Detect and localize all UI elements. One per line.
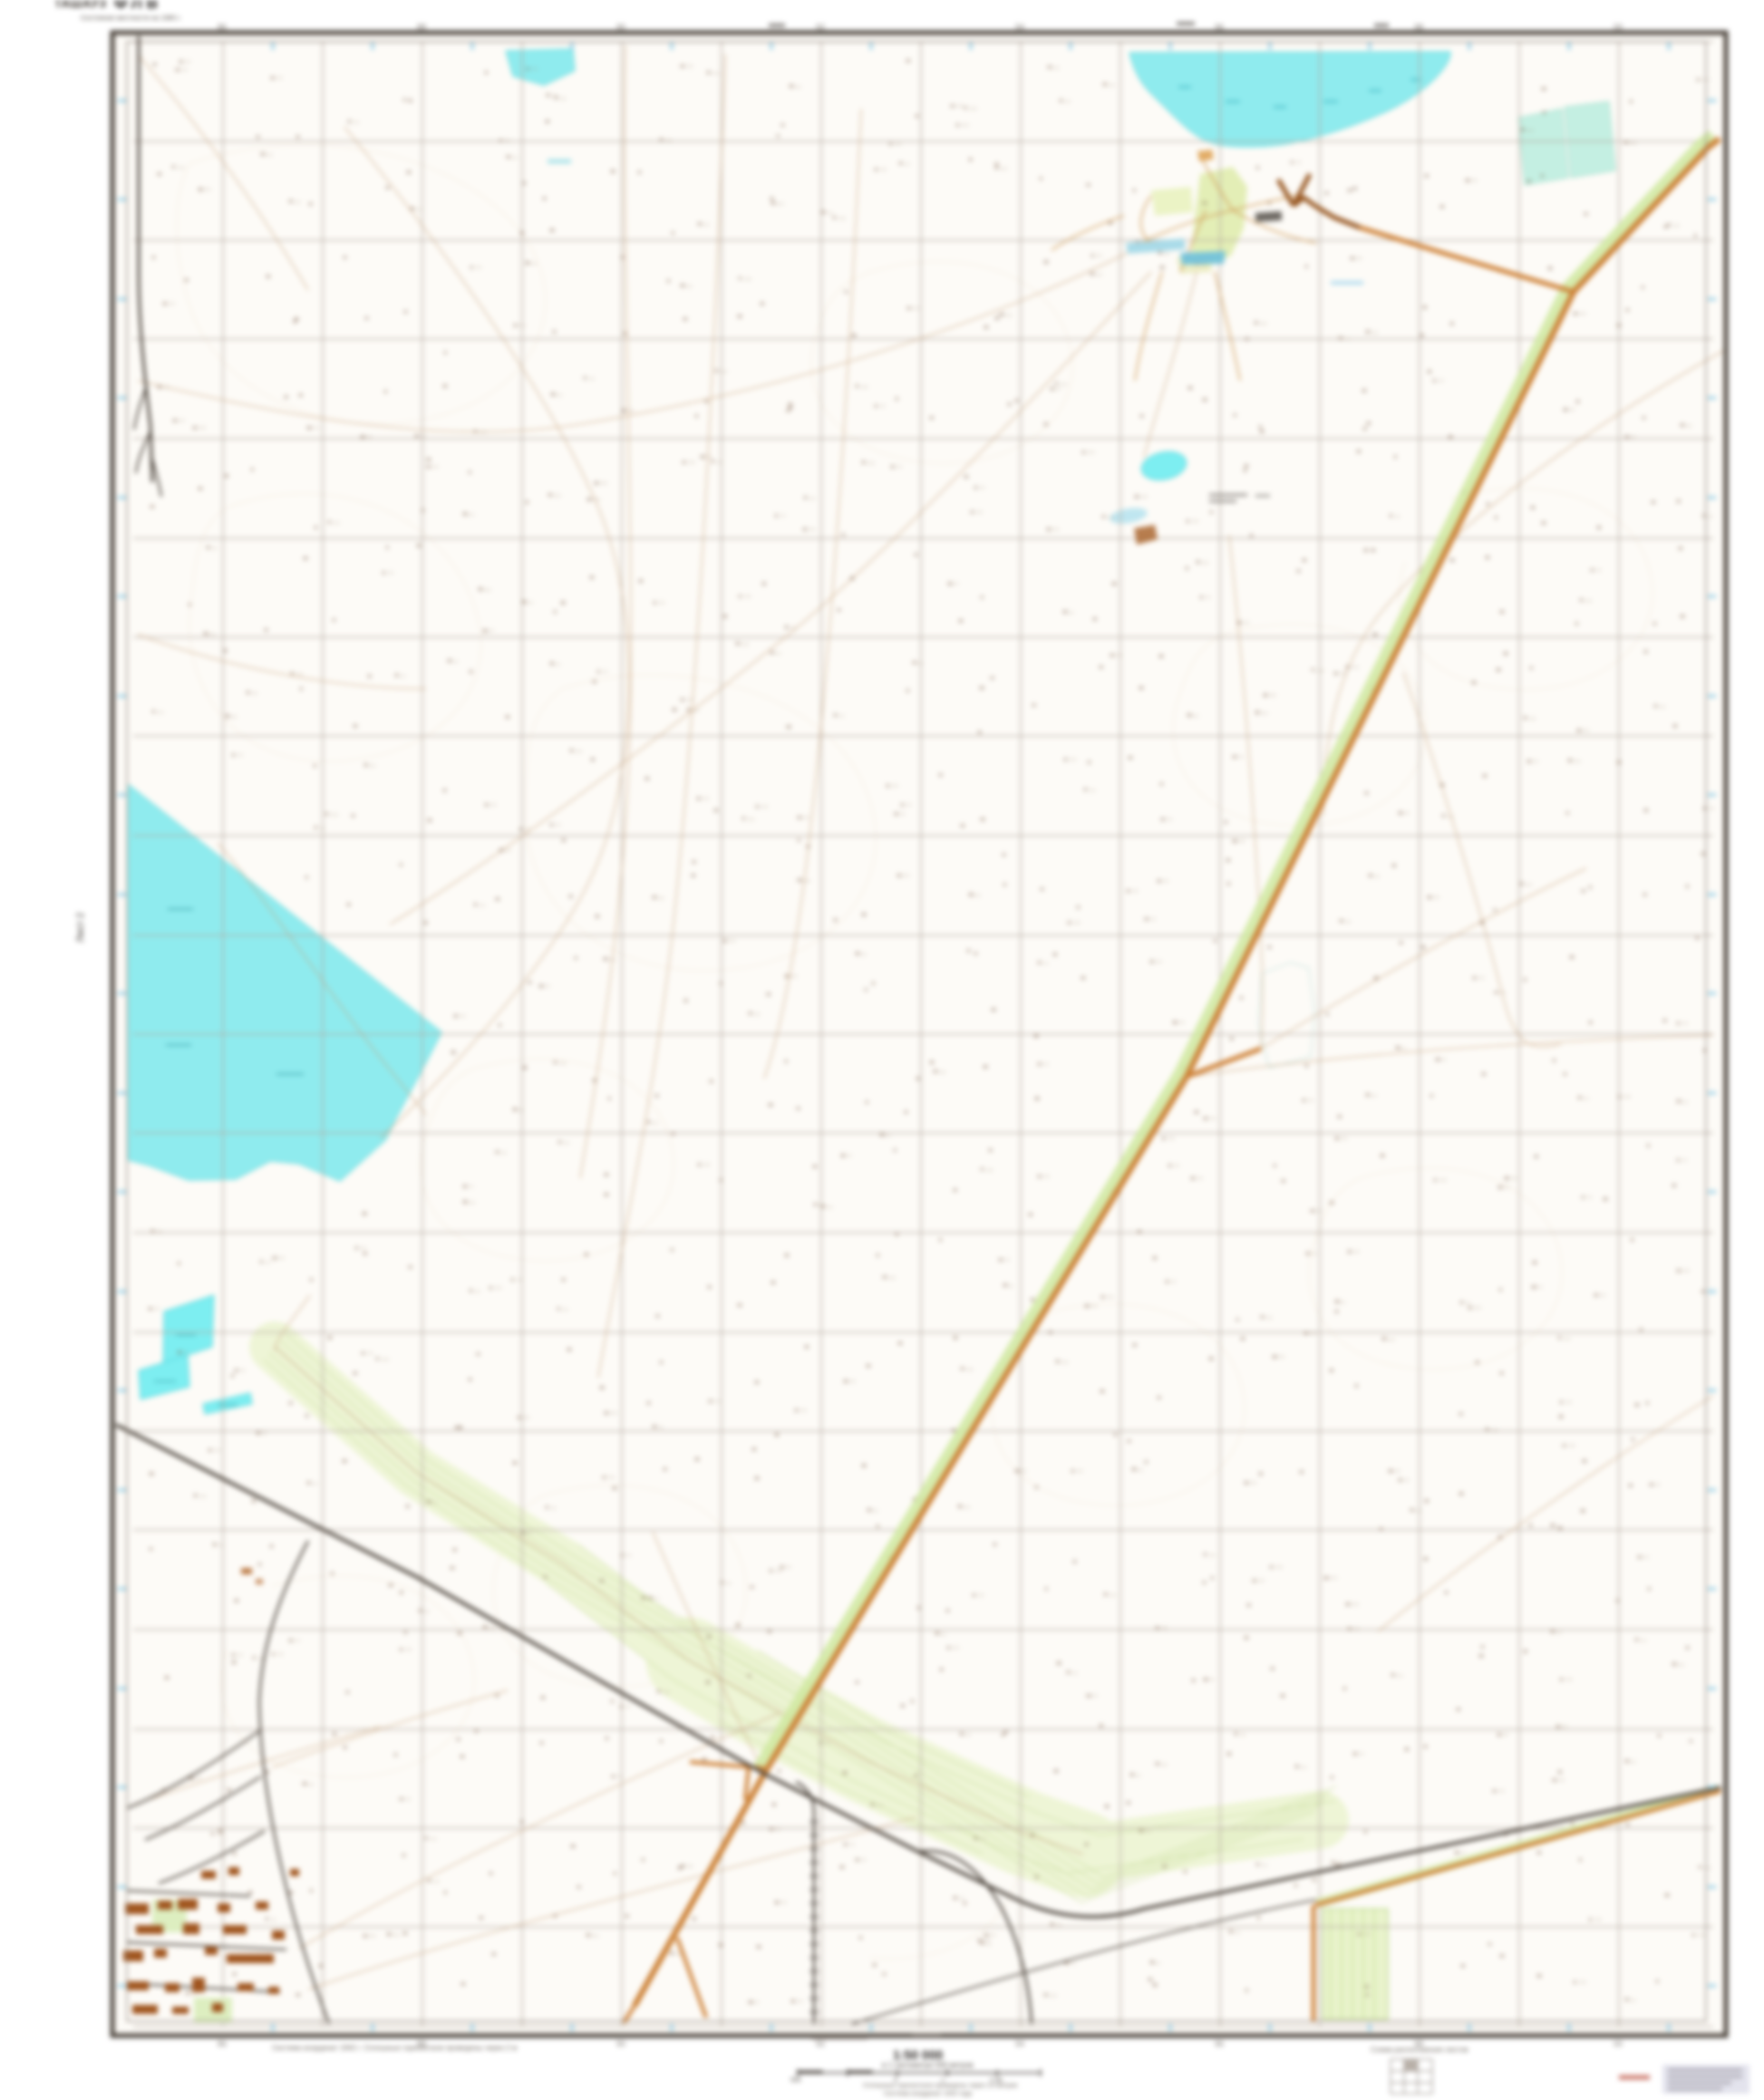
svg-text:Система координат 1942 года: Система координат 1942 года xyxy=(884,2091,972,2097)
svg-text:00: 00 xyxy=(1614,23,1623,32)
svg-text:Схема расположения листов: Схема расположения листов xyxy=(1371,2046,1468,2054)
svg-text:в 1 сантиметре 500 метров: в 1 сантиметре 500 метров xyxy=(882,2061,974,2069)
svg-text:90: 90 xyxy=(616,2039,625,2048)
svg-text:96: 96 xyxy=(1215,2039,1224,2048)
svg-text:1:50 000: 1:50 000 xyxy=(893,2047,943,2062)
svg-text:96: 96 xyxy=(1215,23,1224,32)
svg-text:ФЛВ: ФЛВ xyxy=(114,0,162,12)
svg-text:92: 92 xyxy=(816,2039,825,2048)
svg-text:94: 94 xyxy=(1015,2039,1024,2048)
svg-text:94: 94 xyxy=(1015,23,1024,32)
svg-text:90: 90 xyxy=(616,23,625,32)
svg-text:ТАШАУЗ: ТАШАУЗ xyxy=(54,0,107,10)
svg-text:Состояние местности на 1985 г.: Состояние местности на 1985 г. xyxy=(81,14,181,22)
svg-text:88: 88 xyxy=(417,23,426,32)
svg-text:00: 00 xyxy=(1614,2039,1623,2048)
svg-text:92: 92 xyxy=(816,23,825,32)
svg-text:Сплошные горизонтали проведены: Сплошные горизонтали проведены через 10 … xyxy=(863,2083,1017,2089)
svg-text:Лист 2: Лист 2 xyxy=(75,913,86,943)
svg-text:Система координат 1942 г. Спло: Система координат 1942 г. Сплошные гориз… xyxy=(272,2044,517,2052)
svg-text:86: 86 xyxy=(218,23,227,32)
svg-text:86: 86 xyxy=(218,2039,227,2048)
svg-text:500: 500 xyxy=(790,2077,801,2084)
svg-text:98: 98 xyxy=(1414,23,1423,32)
